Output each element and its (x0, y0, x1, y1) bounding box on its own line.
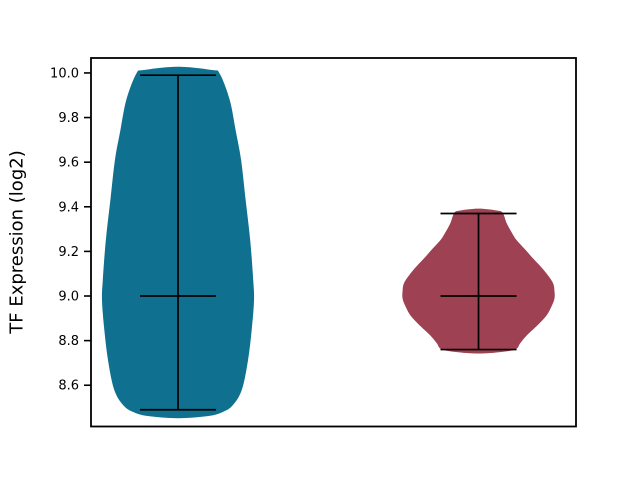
figure: 8.68.89.09.29.49.69.810.0 TF Expression … (0, 0, 640, 480)
y-tick-label: 9.0 (58, 290, 79, 305)
y-tick-label: 9.4 (58, 200, 79, 215)
y-axis-label: TF Expression (log2) (7, 150, 28, 333)
y-tick-label: 9.2 (58, 245, 79, 260)
violin-chart: 8.68.89.09.29.49.69.810.0 (0, 0, 640, 480)
y-tick-label: 8.8 (58, 334, 79, 349)
y-tick-label: 9.8 (58, 111, 79, 126)
y-tick-label: 8.6 (58, 379, 79, 394)
y-tick-label: 10.0 (50, 66, 79, 81)
y-tick-label: 9.6 (58, 156, 79, 171)
